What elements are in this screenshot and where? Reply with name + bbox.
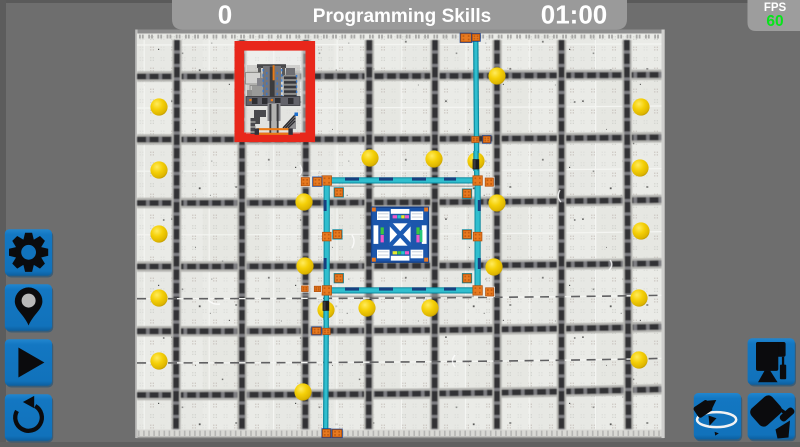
svg-text:60: 60 (766, 13, 783, 30)
svg-text:0: 0 (218, 0, 232, 30)
svg-text:Programming Skills: Programming Skills (313, 6, 491, 27)
svg-text:FPS: FPS (764, 2, 787, 14)
svg-text:01:00: 01:00 (541, 0, 608, 30)
